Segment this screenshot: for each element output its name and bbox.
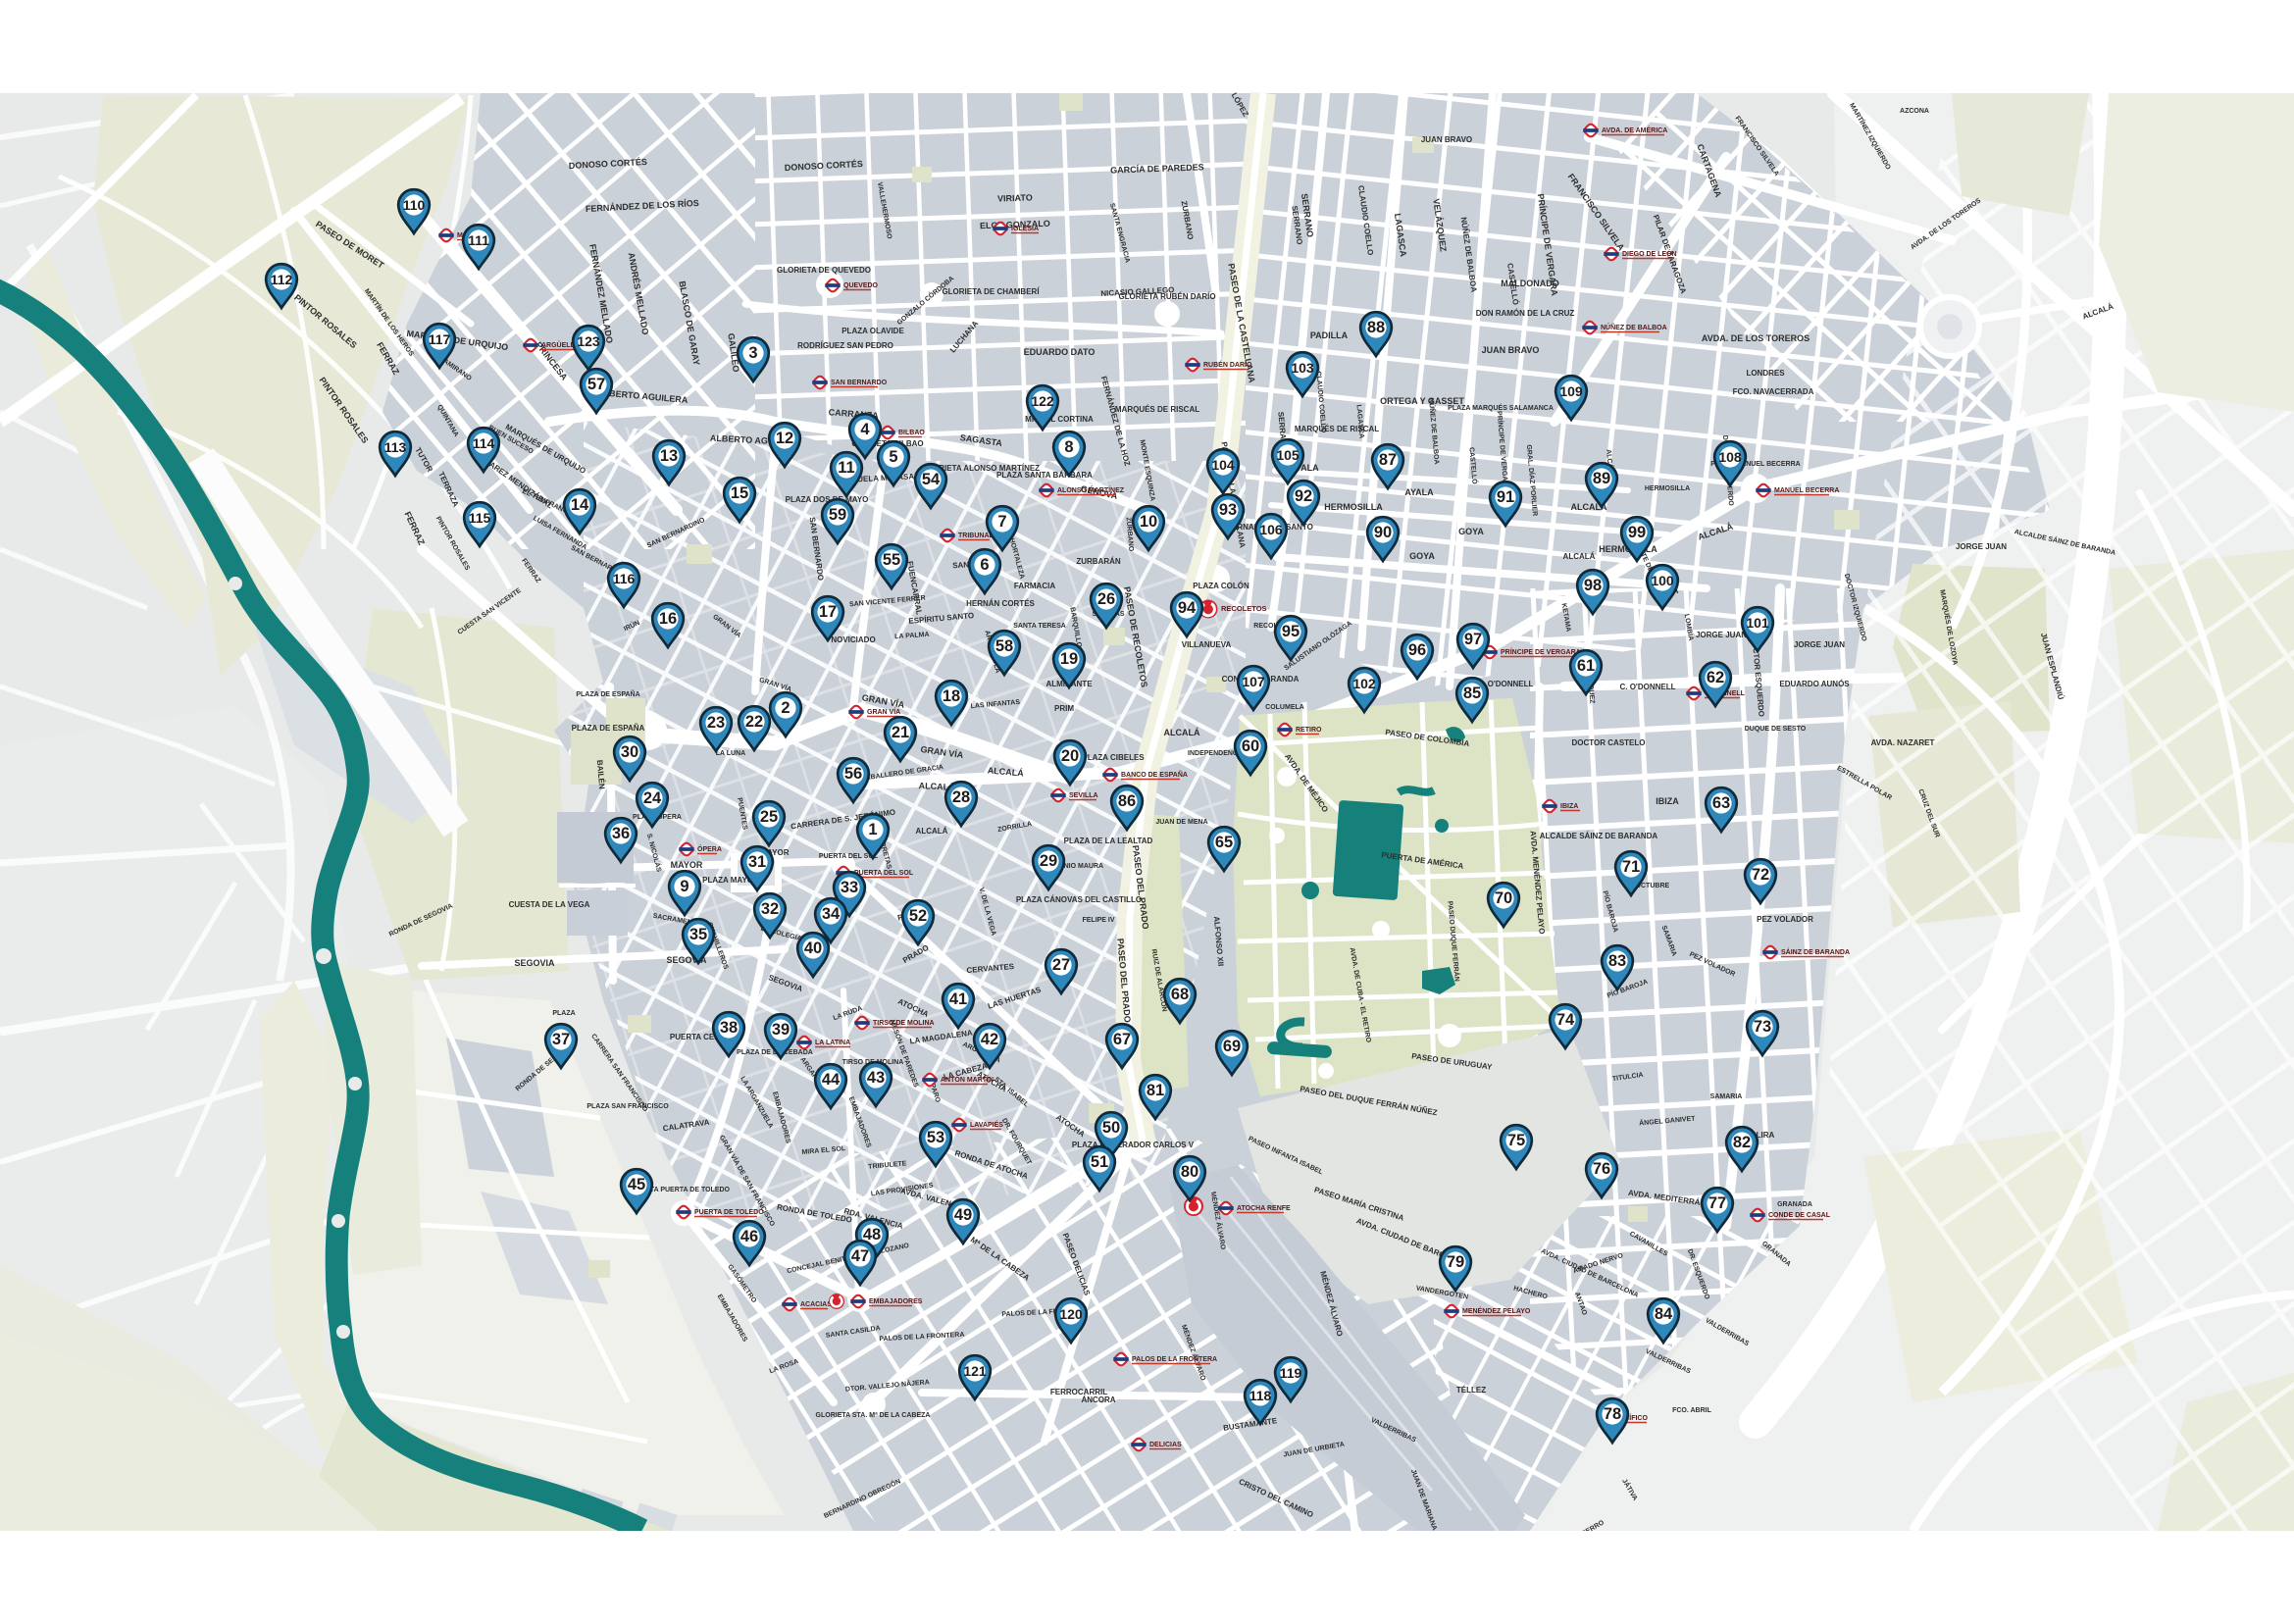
svg-text:4: 4	[860, 421, 870, 438]
svg-text:122: 122	[1031, 393, 1054, 409]
svg-text:TRIBUNAL: TRIBUNAL	[958, 533, 994, 539]
svg-text:ALCALÁ: ALCALÁ	[1164, 728, 1200, 737]
svg-text:52: 52	[909, 907, 927, 925]
svg-text:50: 50	[1102, 1119, 1120, 1137]
svg-text:45: 45	[628, 1176, 645, 1193]
svg-text:54: 54	[922, 471, 941, 488]
svg-text:AVDA. DE AMÉRICA: AVDA. DE AMÉRICA	[1602, 126, 1667, 134]
svg-text:96: 96	[1408, 641, 1426, 659]
svg-text:38: 38	[720, 1019, 738, 1037]
svg-text:88: 88	[1367, 319, 1385, 336]
svg-text:CONDE DE CASAL: CONDE DE CASAL	[1768, 1212, 1831, 1219]
svg-text:114: 114	[473, 435, 495, 451]
svg-text:ACACIAS: ACACIAS	[800, 1301, 832, 1308]
svg-text:LA LUNA: LA LUNA	[716, 750, 745, 757]
svg-text:ALONSO MARTÍNEZ: ALONSO MARTÍNEZ	[1057, 485, 1125, 494]
svg-text:21: 21	[892, 724, 909, 741]
svg-text:FERROCARRIL: FERROCARRIL	[1050, 1388, 1107, 1396]
svg-text:35: 35	[689, 926, 707, 943]
svg-text:106: 106	[1259, 522, 1283, 537]
svg-text:AVDA. NAZARET: AVDA. NAZARET	[1871, 738, 1935, 747]
svg-text:GLORIETA DE CHAMBERÍ: GLORIETA DE CHAMBERÍ	[942, 287, 1040, 296]
svg-text:39: 39	[772, 1021, 790, 1039]
svg-text:22: 22	[745, 713, 763, 731]
svg-text:118: 118	[1249, 1388, 1272, 1403]
svg-text:MENÉNDEZ PELAYO: MENÉNDEZ PELAYO	[1462, 1306, 1531, 1315]
svg-text:58: 58	[995, 637, 1013, 655]
svg-text:61: 61	[1577, 657, 1595, 675]
svg-text:92: 92	[1295, 487, 1312, 505]
svg-text:26: 26	[1097, 590, 1115, 608]
svg-text:O'DONNELL: O'DONNELL	[1488, 680, 1534, 688]
svg-text:SEGOVIA: SEGOVIA	[514, 958, 555, 968]
svg-text:10: 10	[1140, 513, 1157, 531]
svg-text:6: 6	[980, 556, 989, 574]
svg-text:DUQUE DE SESTO: DUQUE DE SESTO	[1745, 726, 1807, 733]
svg-text:17: 17	[819, 603, 837, 621]
svg-text:20: 20	[1061, 747, 1079, 765]
svg-text:93: 93	[1219, 501, 1237, 519]
svg-text:NÚÑEZ DE BALBOA: NÚÑEZ DE BALBOA	[1601, 323, 1667, 331]
svg-text:32: 32	[761, 900, 779, 918]
svg-text:67: 67	[1113, 1031, 1131, 1048]
svg-text:18: 18	[943, 687, 960, 705]
svg-text:51: 51	[1091, 1153, 1108, 1171]
svg-text:GRAN VÍA: GRAN VÍA	[867, 707, 900, 716]
svg-text:HERNÁN CORTÉS: HERNÁN CORTÉS	[966, 599, 1035, 608]
svg-text:LONDRES: LONDRES	[1746, 369, 1785, 378]
svg-text:RUBÉN DARÍO: RUBÉN DARÍO	[1203, 360, 1252, 369]
svg-text:121: 121	[963, 1363, 987, 1379]
svg-text:24: 24	[643, 789, 662, 807]
svg-text:BILBAO: BILBAO	[898, 430, 925, 436]
svg-text:PRÍNCIPE DE VERGARA: PRÍNCIPE DE VERGARA	[1501, 647, 1581, 656]
svg-text:112: 112	[271, 272, 293, 287]
svg-text:120: 120	[1059, 1306, 1083, 1322]
svg-text:42: 42	[981, 1031, 998, 1048]
svg-text:ALCALDE SÁINZ DE BARANDA: ALCALDE SÁINZ DE BARANDA	[1540, 832, 1658, 840]
svg-text:103: 103	[1291, 360, 1314, 376]
svg-text:79: 79	[1447, 1253, 1464, 1271]
svg-text:97: 97	[1464, 631, 1482, 648]
svg-text:COLUMELA: COLUMELA	[1265, 704, 1304, 711]
svg-text:C. O'DONNELL: C. O'DONNELL	[1619, 683, 1675, 691]
svg-text:102: 102	[1352, 676, 1376, 691]
svg-text:78: 78	[1604, 1405, 1621, 1423]
svg-text:HERMOSILLA: HERMOSILLA	[1645, 485, 1690, 492]
svg-text:RETIRO: RETIRO	[1296, 727, 1322, 734]
svg-text:LIRA: LIRA	[1757, 1131, 1775, 1140]
svg-text:83: 83	[1608, 952, 1626, 970]
svg-text:IBIZA: IBIZA	[1656, 796, 1679, 806]
svg-text:DOCTOR CASTELO: DOCTOR CASTELO	[1572, 738, 1646, 747]
svg-text:LAVAPIÉS: LAVAPIÉS	[970, 1120, 1003, 1129]
svg-text:GOYA: GOYA	[1409, 551, 1435, 561]
svg-text:62: 62	[1707, 669, 1724, 686]
svg-text:PLAZA CÁNOVAS DEL CASTILLO: PLAZA CÁNOVAS DEL CASTILLO	[1016, 895, 1142, 904]
svg-text:EDUARDO AUNÓS: EDUARDO AUNÓS	[1779, 680, 1850, 688]
svg-text:53: 53	[927, 1129, 944, 1146]
svg-text:NOVICIADO: NOVICIADO	[831, 635, 875, 644]
svg-text:1: 1	[868, 821, 877, 838]
svg-text:55: 55	[883, 551, 900, 569]
svg-text:AZCONA: AZCONA	[1900, 108, 1929, 115]
svg-text:33: 33	[841, 879, 858, 896]
svg-text:FELIPE IV: FELIPE IV	[1082, 917, 1114, 924]
svg-text:107: 107	[1242, 674, 1265, 689]
svg-text:SAN BERNARDO: SAN BERNARDO	[831, 380, 888, 386]
svg-text:49: 49	[954, 1206, 972, 1224]
svg-text:PEZ VOLADOR: PEZ VOLADOR	[1757, 915, 1813, 924]
svg-text:100: 100	[1651, 573, 1674, 588]
svg-text:41: 41	[949, 990, 967, 1008]
svg-text:PLAZA DE ESPAÑA: PLAZA DE ESPAÑA	[576, 689, 639, 698]
svg-text:VIRIATO: VIRIATO	[997, 192, 1033, 203]
svg-text:JORGE JUAN: JORGE JUAN	[1794, 640, 1845, 649]
svg-text:PLAZA SANTA BÁRBARA: PLAZA SANTA BÁRBARA	[996, 471, 1093, 480]
svg-text:FCO. NAVACERRADA: FCO. NAVACERRADA	[1733, 387, 1814, 396]
svg-text:57: 57	[587, 376, 605, 393]
svg-text:43: 43	[867, 1069, 885, 1087]
svg-text:60: 60	[1242, 737, 1259, 755]
svg-text:PUERTA DE TOLEDO: PUERTA DE TOLEDO	[694, 1209, 764, 1216]
svg-text:AYALA: AYALA	[1404, 487, 1434, 497]
svg-text:JORGE JUAN: JORGE JUAN	[1696, 631, 1747, 639]
svg-text:110: 110	[403, 197, 426, 213]
svg-text:ATOCHA RENFE: ATOCHA RENFE	[1237, 1205, 1291, 1212]
svg-text:GRANADA: GRANADA	[1777, 1201, 1812, 1208]
svg-text:94: 94	[1178, 599, 1197, 617]
svg-text:73: 73	[1754, 1018, 1771, 1036]
svg-text:CUESTA DE LA VEGA: CUESTA DE LA VEGA	[509, 900, 590, 909]
svg-text:29: 29	[1040, 852, 1057, 870]
svg-text:9: 9	[680, 878, 688, 895]
svg-text:DIEGO DE LEÓN: DIEGO DE LEÓN	[1622, 249, 1677, 258]
svg-text:JUAN BRAVO: JUAN BRAVO	[1482, 345, 1540, 355]
svg-text:25: 25	[760, 808, 778, 826]
svg-text:AVDA. DE LOS TOREROS: AVDA. DE LOS TOREROS	[1702, 333, 1810, 343]
svg-text:119: 119	[1280, 1365, 1302, 1381]
svg-text:12: 12	[776, 430, 793, 447]
svg-text:15: 15	[731, 484, 748, 502]
svg-text:PUERTA DEL SOL: PUERTA DEL SOL	[854, 870, 914, 877]
svg-text:30: 30	[621, 743, 638, 761]
svg-text:11: 11	[838, 459, 854, 477]
svg-text:SEVILLA: SEVILLA	[1069, 792, 1098, 799]
svg-text:13: 13	[660, 447, 678, 465]
svg-text:GLORIETA DE QUEVEDO: GLORIETA DE QUEVEDO	[777, 266, 871, 275]
svg-text:RECOLETOS: RECOLETOS	[1221, 604, 1267, 613]
svg-text:74: 74	[1556, 1011, 1575, 1029]
svg-text:2: 2	[781, 699, 790, 717]
svg-text:98: 98	[1584, 577, 1602, 594]
svg-text:PLAZA OLAVIDE: PLAZA OLAVIDE	[841, 327, 904, 335]
svg-text:MAYOR: MAYOR	[671, 860, 703, 870]
svg-text:19: 19	[1060, 650, 1078, 668]
svg-text:JUAN DE MENA: JUAN DE MENA	[1155, 819, 1207, 826]
svg-text:ÁNCORA: ÁNCORA	[1081, 1396, 1115, 1404]
svg-text:PLAZA COLÓN: PLAZA COLÓN	[1193, 582, 1249, 590]
svg-text:ALCALÁ: ALCALÁ	[1563, 552, 1596, 561]
svg-text:89: 89	[1593, 470, 1610, 487]
svg-text:76: 76	[1593, 1160, 1610, 1178]
svg-text:85: 85	[1463, 685, 1481, 702]
svg-text:PLAZA: PLAZA	[552, 1010, 575, 1017]
svg-text:JUAN BRAVO: JUAN BRAVO	[1421, 135, 1472, 144]
svg-text:EDUARDO DATO: EDUARDO DATO	[1024, 347, 1096, 357]
svg-text:69: 69	[1223, 1038, 1241, 1055]
svg-text:117: 117	[429, 331, 451, 347]
svg-text:HERMOSILLA: HERMOSILLA	[1324, 502, 1383, 512]
svg-text:46: 46	[740, 1228, 758, 1245]
svg-text:111: 111	[468, 232, 489, 248]
svg-text:113: 113	[384, 439, 407, 455]
svg-text:3: 3	[748, 344, 757, 362]
svg-text:PLAZA CIBELES: PLAZA CIBELES	[1082, 753, 1145, 762]
svg-text:68: 68	[1171, 986, 1189, 1003]
svg-text:65: 65	[1215, 834, 1233, 851]
svg-text:EMBAJADORES: EMBAJADORES	[869, 1298, 923, 1305]
svg-text:115: 115	[469, 510, 491, 526]
svg-text:72: 72	[1752, 866, 1769, 884]
svg-text:108: 108	[1718, 449, 1742, 465]
svg-text:LA LATINA: LA LATINA	[815, 1040, 850, 1046]
svg-text:28: 28	[952, 788, 970, 806]
svg-text:40: 40	[804, 939, 822, 957]
svg-text:FARMACIA: FARMACIA	[1014, 582, 1055, 590]
svg-text:MANUEL BECERRA: MANUEL BECERRA	[1774, 487, 1839, 494]
svg-text:81: 81	[1147, 1082, 1164, 1099]
svg-text:ANTÓN MARTÍN: ANTÓN MARTÍN	[941, 1075, 994, 1084]
svg-text:RODRÍGUEZ SAN PEDRO: RODRÍGUEZ SAN PEDRO	[797, 341, 893, 350]
svg-text:VILLANUEVA: VILLANUEVA	[1182, 640, 1232, 649]
svg-text:SÁINZ DE BARANDA: SÁINZ DE BARANDA	[1781, 947, 1850, 956]
svg-text:63: 63	[1712, 794, 1730, 812]
svg-text:8: 8	[1064, 438, 1073, 456]
svg-text:31: 31	[748, 853, 766, 871]
svg-text:JORGE JUAN: JORGE JUAN	[1956, 542, 2007, 551]
svg-text:DELICIAS: DELICIAS	[1149, 1442, 1182, 1448]
svg-text:16: 16	[659, 610, 677, 628]
svg-text:ZURBARÁN: ZURBARÁN	[1076, 557, 1121, 566]
svg-text:DON RAMÓN DE LA CRUZ: DON RAMÓN DE LA CRUZ	[1476, 309, 1575, 318]
svg-text:TÉLLEZ: TÉLLEZ	[1456, 1386, 1486, 1395]
svg-text:MALDONADO: MALDONADO	[1501, 279, 1559, 288]
svg-text:36: 36	[612, 825, 630, 842]
svg-text:109: 109	[1559, 383, 1583, 399]
svg-text:GOYA: GOYA	[1458, 527, 1484, 536]
svg-text:BANCO DE ESPAÑA: BANCO DE ESPAÑA	[1121, 770, 1188, 779]
svg-text:PLAZA SAN FRANCISCO: PLAZA SAN FRANCISCO	[586, 1103, 669, 1110]
svg-text:95: 95	[1282, 623, 1300, 640]
svg-text:7: 7	[997, 513, 1006, 531]
svg-text:82: 82	[1733, 1134, 1751, 1151]
svg-text:80: 80	[1181, 1163, 1198, 1181]
svg-text:5: 5	[889, 448, 897, 466]
svg-text:TIRSO DE MOLINA: TIRSO DE MOLINA	[873, 1020, 935, 1027]
svg-text:123: 123	[577, 333, 600, 349]
svg-text:101: 101	[1746, 615, 1769, 631]
svg-text:77: 77	[1708, 1194, 1726, 1212]
svg-text:59: 59	[829, 506, 846, 524]
svg-text:PRIM: PRIM	[1054, 704, 1074, 713]
svg-text:ALCALÁ: ALCALÁ	[916, 827, 948, 836]
svg-text:34: 34	[822, 905, 841, 923]
svg-text:71: 71	[1622, 858, 1640, 876]
svg-text:MARQUÉS DE RISCAL: MARQUÉS DE RISCAL	[1295, 425, 1379, 433]
svg-text:47: 47	[851, 1247, 869, 1265]
svg-text:FCO. ABRIL: FCO. ABRIL	[1672, 1407, 1712, 1414]
svg-text:105: 105	[1276, 447, 1300, 463]
svg-text:84: 84	[1655, 1305, 1673, 1323]
svg-text:44: 44	[822, 1071, 841, 1089]
svg-text:27: 27	[1052, 956, 1070, 974]
svg-text:IBIZA: IBIZA	[1560, 803, 1578, 810]
svg-text:GLORIETA STA. Mª DE LA CABEZA: GLORIETA STA. Mª DE LA CABEZA	[816, 1412, 931, 1419]
svg-text:37: 37	[552, 1031, 570, 1048]
svg-text:87: 87	[1379, 451, 1397, 469]
svg-text:56: 56	[844, 765, 862, 783]
svg-text:86: 86	[1118, 792, 1136, 810]
svg-text:PADILLA: PADILLA	[1310, 330, 1349, 340]
svg-text:99: 99	[1628, 524, 1646, 541]
svg-text:75: 75	[1507, 1132, 1525, 1149]
svg-text:91: 91	[1497, 488, 1514, 506]
svg-text:SAMARIA: SAMARIA	[1710, 1093, 1743, 1100]
svg-text:SANTA TERESA: SANTA TERESA	[1013, 623, 1066, 630]
svg-text:23: 23	[707, 714, 725, 732]
svg-text:PLAZA DE ESPAÑA: PLAZA DE ESPAÑA	[572, 724, 645, 733]
svg-text:14: 14	[571, 496, 589, 514]
svg-text:PLAZA DE LA LEALTAD: PLAZA DE LA LEALTAD	[1064, 837, 1153, 845]
svg-text:90: 90	[1374, 524, 1392, 541]
svg-text:MARQUÉS DE RISCAL: MARQUÉS DE RISCAL	[1115, 405, 1199, 414]
svg-text:QUEVEDO: QUEVEDO	[843, 282, 879, 289]
svg-text:ÓPERA: ÓPERA	[697, 844, 722, 853]
svg-text:116: 116	[613, 571, 636, 586]
svg-text:70: 70	[1495, 889, 1512, 907]
svg-text:104: 104	[1211, 457, 1235, 473]
svg-text:PALOS DE LA FRONTERA: PALOS DE LA FRONTERA	[1132, 1356, 1217, 1363]
svg-text:IGLESIA: IGLESIA	[1011, 226, 1039, 232]
